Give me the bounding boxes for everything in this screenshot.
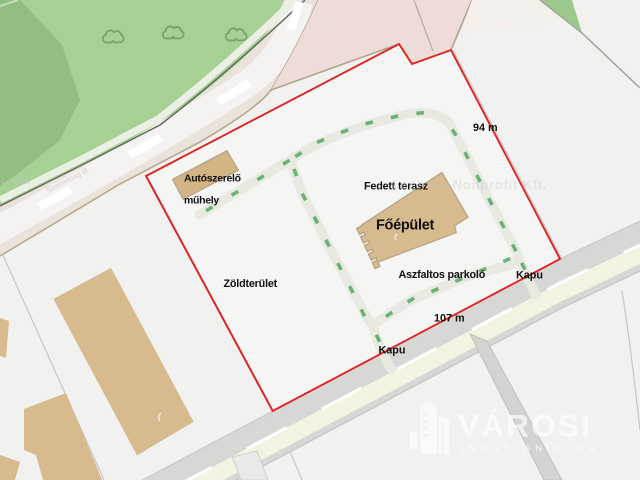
svg-text:Aszfaltos parkoló: Aszfaltos parkoló	[399, 269, 486, 281]
svg-text:Lechner: Lechner	[2, 177, 31, 186]
svg-text:Autószerelő: Autószerelő	[184, 173, 241, 185]
svg-text:VÁROSI: VÁROSI	[458, 408, 592, 444]
svg-text:Kapu: Kapu	[516, 269, 543, 281]
svg-text:Zöldterület: Zöldterület	[224, 278, 278, 290]
svg-text:Kapu: Kapu	[379, 345, 406, 357]
svg-text:Főépület: Főépület	[376, 218, 434, 234]
svg-text:INGATLANIRODA: INGATLANIRODA	[462, 444, 601, 455]
svg-text:Lechner Nonprofit Kft.: Lechner Nonprofit Kft.	[392, 177, 548, 192]
svg-text:műhely: műhely	[184, 195, 219, 207]
svg-text:94 m: 94 m	[473, 122, 498, 134]
svg-text:107 m: 107 m	[434, 313, 465, 325]
